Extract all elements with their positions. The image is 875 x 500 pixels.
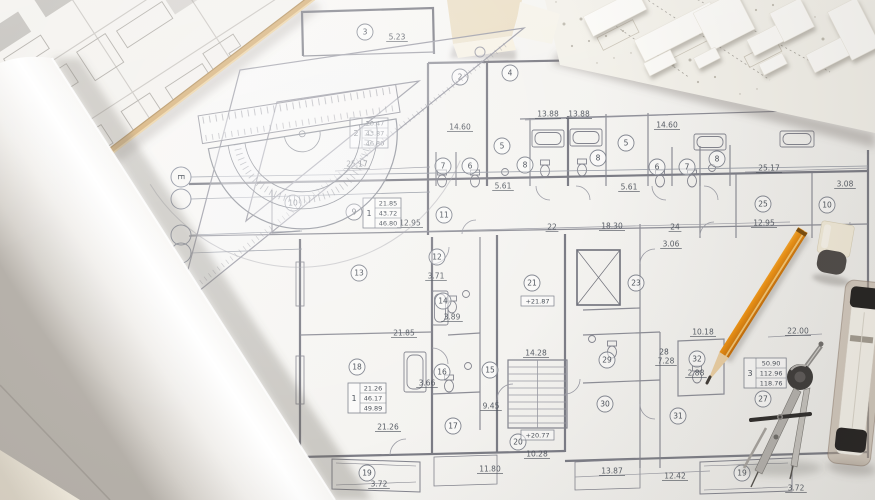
elevation-mark: +20.77	[521, 430, 554, 440]
dimension-label: 2.88	[685, 369, 707, 378]
dimension-label: 5.23	[386, 33, 408, 42]
area-table: 350.90112.96118.76	[744, 358, 786, 388]
dimension-label: 10.28	[524, 450, 550, 459]
room-number: 29	[599, 352, 615, 368]
dimension-label: 22	[546, 223, 559, 232]
room-number: 21	[524, 275, 540, 291]
dimension-label: 22.00	[785, 327, 811, 336]
dimension-label: 25.17	[756, 164, 782, 173]
svg-text:1: 1	[351, 394, 356, 403]
svg-text:3.72: 3.72	[371, 480, 388, 489]
room-number: 11	[436, 207, 452, 223]
svg-text:3.89: 3.89	[444, 313, 461, 322]
svg-text:8: 8	[523, 161, 528, 170]
svg-text:43.72: 43.72	[379, 210, 398, 218]
dimension-label: 5.61	[618, 183, 640, 192]
room-number: 23	[628, 275, 644, 291]
room-number: 14	[435, 293, 451, 309]
dimension-label: 13.88	[535, 110, 561, 119]
svg-text:14: 14	[438, 297, 448, 306]
svg-text:21: 21	[527, 279, 537, 288]
svg-text:27: 27	[758, 395, 768, 404]
svg-text:7: 7	[441, 162, 446, 171]
svg-text:8: 8	[715, 155, 720, 164]
room-number: 5	[494, 138, 510, 154]
svg-text:5.61: 5.61	[621, 183, 638, 192]
svg-text:2.88: 2.88	[688, 369, 705, 378]
dimension-label: 3.72	[785, 484, 807, 493]
svg-text:13.88: 13.88	[537, 110, 559, 119]
dimension-label: 18.30	[599, 222, 625, 231]
svg-text:3.08: 3.08	[837, 180, 854, 189]
svg-text:1: 1	[366, 209, 371, 218]
room-number: 3	[357, 24, 373, 40]
svg-text:16: 16	[437, 368, 447, 377]
svg-text:25.17: 25.17	[758, 164, 780, 173]
dimension-label: 14.60	[654, 121, 680, 130]
svg-text:5: 5	[500, 142, 505, 151]
svg-text:118.76: 118.76	[760, 380, 783, 388]
room-number: 30	[597, 396, 613, 412]
room-number: 6	[649, 159, 665, 175]
room-number: 4	[502, 65, 518, 81]
svg-text:22.00: 22.00	[787, 327, 809, 336]
svg-text:3: 3	[747, 369, 752, 378]
svg-text:11: 11	[439, 211, 449, 220]
scene-svg: E5.2314.6013.8813.8814.605.615.6125.1725…	[0, 0, 875, 500]
svg-text:46.80: 46.80	[379, 220, 398, 228]
svg-text:31: 31	[673, 412, 683, 421]
svg-text:5.23: 5.23	[389, 33, 406, 42]
case-cap-bottom	[834, 427, 867, 453]
room-number: 25	[755, 196, 771, 212]
room-number: 27	[755, 391, 771, 407]
room-number: 10	[819, 197, 835, 213]
svg-text:23: 23	[631, 279, 641, 288]
svg-text:7.28: 7.28	[658, 357, 675, 366]
room-number: 32	[689, 351, 705, 367]
svg-text:30: 30	[600, 400, 610, 409]
dimension-label: 3.71	[425, 272, 447, 281]
room-number: 17	[445, 418, 461, 434]
dimension-label: 21.85	[391, 329, 417, 338]
room-number: 8	[517, 157, 533, 173]
room-number: 6	[462, 158, 478, 174]
svg-text:13.87: 13.87	[601, 467, 623, 476]
svg-text:25: 25	[758, 200, 768, 209]
svg-text:6: 6	[468, 162, 473, 171]
dimension-label: 7.28	[655, 357, 677, 366]
dimension-label: 14.60	[447, 123, 473, 132]
svg-text:18: 18	[352, 363, 362, 372]
area-table: 121.2646.1749.89	[348, 383, 386, 413]
dimension-label: 12.95	[751, 219, 777, 228]
room-number: 7	[679, 159, 695, 175]
room-number: 13	[351, 265, 367, 281]
svg-text:3.72: 3.72	[788, 484, 805, 493]
svg-text:14.28: 14.28	[525, 349, 547, 358]
svg-text:21.85: 21.85	[393, 329, 415, 338]
svg-text:11.80: 11.80	[479, 465, 501, 474]
dimension-label: 21.26	[375, 423, 401, 432]
svg-text:12.95: 12.95	[399, 219, 421, 228]
dimension-label: 10.18	[690, 328, 716, 337]
room-number: 8	[590, 150, 606, 166]
dimension-label: 3.08	[834, 180, 856, 189]
dimension-label: 5.61	[492, 182, 514, 191]
svg-text:5: 5	[624, 139, 629, 148]
photo-scene: E5.2314.6013.8813.8814.605.615.6125.1725…	[0, 0, 875, 500]
svg-text:32: 32	[692, 355, 702, 364]
svg-text:+21.87: +21.87	[525, 298, 549, 306]
dimension-label: 12.42	[662, 472, 688, 481]
svg-text:10: 10	[822, 201, 832, 210]
room-number: 18	[349, 359, 365, 375]
elevation-mark: +21.87	[521, 296, 554, 306]
svg-text:6: 6	[655, 163, 660, 172]
dimension-label: 3.72	[368, 480, 390, 489]
svg-text:22: 22	[547, 223, 557, 232]
room-number: 16	[434, 364, 450, 380]
dimension-label: 3.06	[660, 240, 682, 249]
svg-text:19: 19	[362, 469, 372, 478]
svg-text:17: 17	[448, 422, 458, 431]
dimension-label: 3.66	[416, 379, 438, 388]
svg-text:3: 3	[363, 28, 368, 37]
svg-text:112.96: 112.96	[760, 370, 783, 378]
case-cap-top	[849, 286, 875, 310]
svg-text:50.90: 50.90	[762, 360, 781, 368]
svg-text:3.06: 3.06	[663, 240, 680, 249]
svg-text:12: 12	[432, 253, 442, 262]
svg-text:8: 8	[596, 154, 601, 163]
svg-text:49.89: 49.89	[364, 405, 383, 413]
svg-text:4: 4	[508, 69, 513, 78]
svg-text:12.95: 12.95	[753, 219, 775, 228]
room-number: 15	[482, 362, 498, 378]
svg-text:10.28: 10.28	[526, 450, 548, 459]
svg-text:10.18: 10.18	[692, 328, 714, 337]
svg-text:13: 13	[354, 269, 364, 278]
dimension-label: 13.88	[566, 110, 592, 119]
room-number: 31	[670, 408, 686, 424]
svg-text:24: 24	[670, 223, 680, 232]
svg-text:14.60: 14.60	[449, 123, 471, 132]
svg-text:15: 15	[485, 366, 495, 375]
svg-text:13.88: 13.88	[568, 110, 590, 119]
svg-text:21.85: 21.85	[379, 200, 398, 208]
room-number: 7	[435, 158, 451, 174]
room-number: 5	[618, 135, 634, 151]
dimension-label: 24	[669, 223, 682, 232]
dimension-label: 13.87	[599, 467, 625, 476]
svg-text:5.61: 5.61	[495, 182, 512, 191]
svg-text:21.26: 21.26	[364, 385, 383, 393]
svg-text:21.26: 21.26	[377, 423, 399, 432]
svg-text:9.45: 9.45	[483, 402, 500, 411]
room-number: 19	[359, 465, 375, 481]
svg-text:3.66: 3.66	[419, 379, 436, 388]
plain-label: 28	[659, 348, 669, 357]
svg-text:3.71: 3.71	[428, 272, 445, 281]
dimension-label: 9.45	[480, 402, 502, 411]
svg-text:E: E	[175, 174, 185, 180]
svg-text:29: 29	[602, 356, 612, 365]
svg-text:46.17: 46.17	[364, 395, 383, 403]
dimension-label: 11.80	[477, 465, 503, 474]
svg-text:7: 7	[685, 163, 690, 172]
svg-text:12.42: 12.42	[664, 472, 686, 481]
svg-text:+20.77: +20.77	[525, 432, 549, 440]
svg-text:14.60: 14.60	[656, 121, 678, 130]
dimension-label: 3.89	[441, 313, 463, 322]
dimension-label: 14.28	[523, 349, 549, 358]
room-number: 12	[429, 249, 445, 265]
room-number: 8	[709, 151, 725, 167]
svg-text:18.30: 18.30	[601, 222, 623, 231]
